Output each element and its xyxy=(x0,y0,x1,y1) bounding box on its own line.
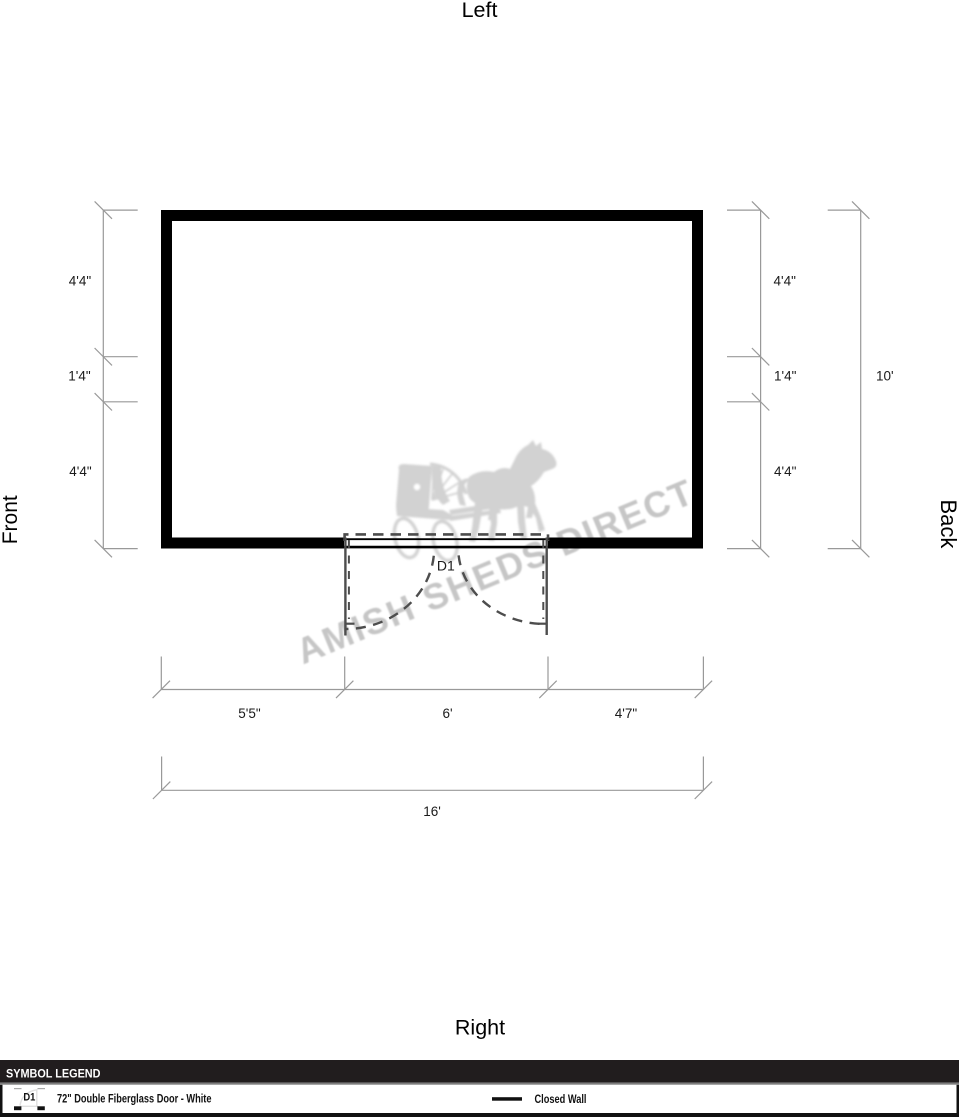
svg-text:4'4": 4'4" xyxy=(774,464,797,479)
svg-text:Closed Wall: Closed Wall xyxy=(535,1094,587,1106)
svg-text:Right: Right xyxy=(455,1016,505,1040)
svg-text:6': 6' xyxy=(442,706,452,721)
svg-text:4'4": 4'4" xyxy=(774,274,797,289)
svg-text:1'4": 1'4" xyxy=(774,369,797,384)
svg-text:Front: Front xyxy=(0,495,22,544)
svg-text:4'4": 4'4" xyxy=(69,464,92,479)
svg-text:D1: D1 xyxy=(437,558,455,574)
svg-text:72" Double Fiberglass Door - W: 72" Double Fiberglass Door - White xyxy=(57,1094,212,1106)
svg-text:Left: Left xyxy=(462,0,498,22)
svg-text:SYMBOL LEGEND: SYMBOL LEGEND xyxy=(6,1067,101,1081)
svg-text:1'4": 1'4" xyxy=(68,368,91,383)
svg-text:10': 10' xyxy=(876,369,894,384)
svg-text:5'5": 5'5" xyxy=(238,706,261,721)
svg-text:D1: D1 xyxy=(23,1092,35,1104)
svg-text:Back: Back xyxy=(936,500,959,550)
svg-text:4'7": 4'7" xyxy=(615,706,638,721)
svg-text:4'4": 4'4" xyxy=(69,274,92,289)
svg-text:16': 16' xyxy=(423,804,441,819)
